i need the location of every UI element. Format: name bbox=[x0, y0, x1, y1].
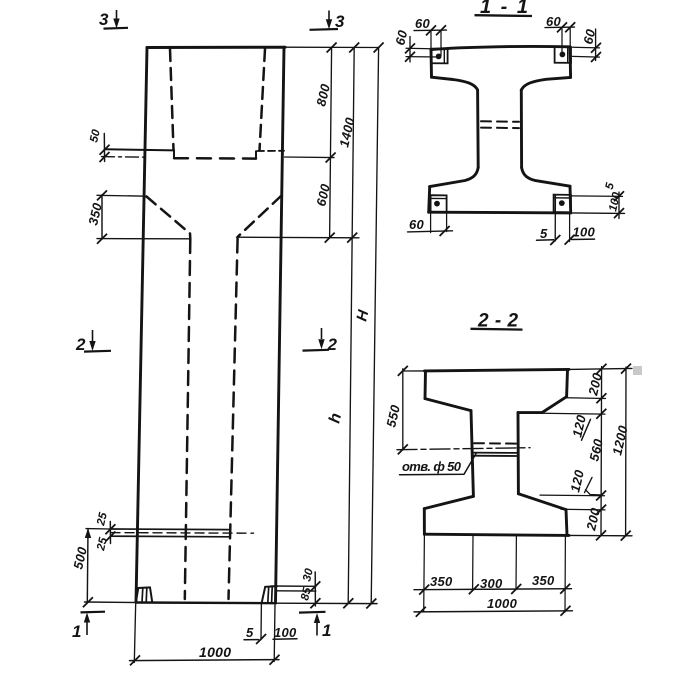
svg-text:350: 350 bbox=[430, 574, 453, 589]
svg-text:5: 5 bbox=[540, 226, 548, 241]
svg-text:3: 3 bbox=[99, 10, 109, 29]
svg-text:отв. ф 50: отв. ф 50 bbox=[402, 459, 462, 474]
svg-text:3: 3 bbox=[335, 12, 345, 31]
svg-text:1: 1 bbox=[72, 622, 81, 641]
svg-text:2: 2 bbox=[327, 335, 338, 354]
svg-text:60: 60 bbox=[546, 14, 562, 29]
svg-text:300: 300 bbox=[480, 576, 503, 591]
svg-text:60: 60 bbox=[409, 217, 425, 232]
svg-text:5: 5 bbox=[246, 625, 254, 640]
svg-text:1000: 1000 bbox=[487, 596, 518, 611]
svg-text:60: 60 bbox=[415, 16, 431, 31]
svg-text:1000: 1000 bbox=[199, 644, 231, 660]
svg-text:100: 100 bbox=[573, 225, 596, 240]
svg-text:100: 100 bbox=[274, 625, 297, 640]
svg-text:350: 350 bbox=[532, 573, 555, 588]
svg-text:1: 1 bbox=[322, 621, 331, 640]
